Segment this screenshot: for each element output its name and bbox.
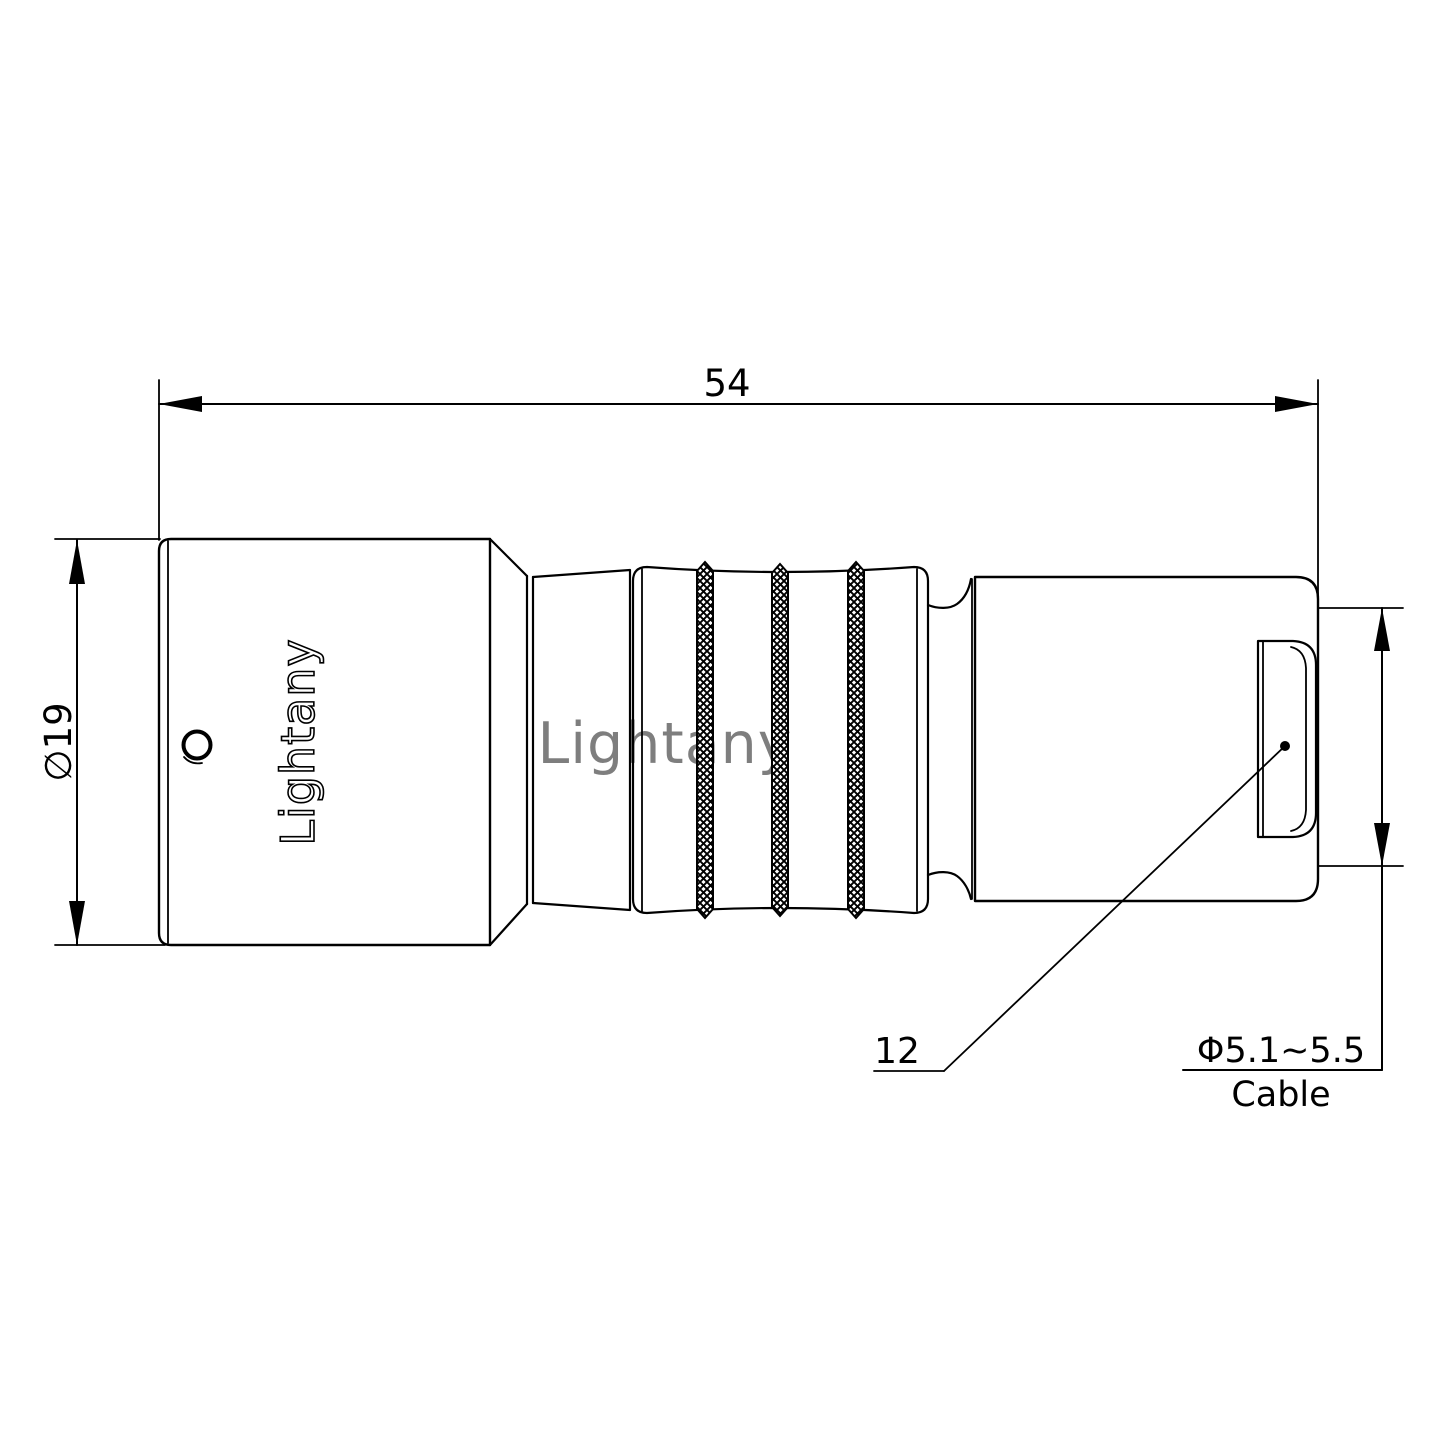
brand-engraving: Lightany bbox=[271, 638, 325, 845]
connector-technical-drawing: Lightany bbox=[0, 0, 1440, 1440]
dim-label-front-diameter: ∅19 bbox=[37, 702, 80, 781]
leader-dot bbox=[1280, 741, 1290, 751]
cable-diameter-label: Φ5.1~5.5 bbox=[1197, 1031, 1365, 1071]
cable-label: Cable bbox=[1231, 1075, 1330, 1115]
knurl-band-1 bbox=[697, 562, 713, 918]
knurl-band-2 bbox=[772, 564, 788, 916]
knurl-band-3 bbox=[848, 562, 864, 918]
technical-drawing-page: Lightany bbox=[0, 0, 1440, 1440]
watermark-text: Lightany bbox=[537, 711, 792, 777]
dim-label-rear-size: 12 bbox=[874, 1031, 920, 1072]
dim-label-length: 54 bbox=[703, 362, 750, 405]
